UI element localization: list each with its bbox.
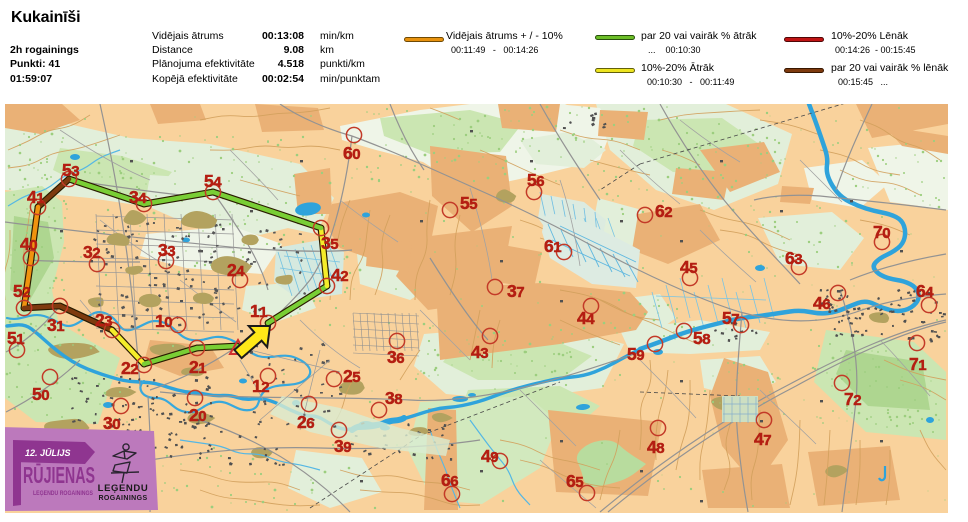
svg-text:46: 46 [813, 293, 830, 313]
svg-text:41: 41 [27, 187, 44, 207]
svg-text:71: 71 [909, 354, 926, 374]
svg-text:10: 10 [155, 311, 172, 331]
svg-text:64: 64 [916, 281, 934, 301]
svg-text:RŪJIENAS: RŪJIENAS [23, 462, 95, 488]
svg-text:50: 50 [32, 384, 49, 404]
svg-text:ROGAININGS: ROGAININGS [98, 495, 147, 502]
svg-text:53: 53 [62, 160, 79, 180]
svg-text:52: 52 [13, 281, 30, 301]
svg-text:44: 44 [577, 308, 595, 328]
svg-text:22: 22 [121, 358, 138, 378]
svg-text:31: 31 [47, 315, 64, 335]
svg-text:47: 47 [754, 429, 771, 449]
svg-text:40: 40 [20, 234, 37, 254]
svg-text:72: 72 [844, 389, 861, 409]
svg-text:56: 56 [527, 170, 544, 190]
svg-text:LEĢENDU ROGAININGS: LEĢENDU ROGAININGS [33, 490, 93, 497]
svg-text:32: 32 [83, 242, 100, 262]
svg-text:66: 66 [441, 470, 458, 490]
svg-text:54: 54 [204, 171, 222, 191]
svg-text:48: 48 [647, 437, 664, 457]
svg-text:25: 25 [343, 366, 360, 386]
svg-text:34: 34 [129, 187, 147, 207]
svg-text:45: 45 [680, 257, 697, 277]
svg-text:43: 43 [471, 342, 488, 362]
svg-text:24: 24 [227, 260, 245, 280]
svg-text:23: 23 [95, 310, 112, 330]
svg-text:26: 26 [297, 412, 314, 432]
svg-text:49: 49 [481, 446, 498, 466]
svg-text:36: 36 [387, 347, 404, 367]
svg-text:11: 11 [250, 301, 267, 321]
svg-text:63: 63 [785, 248, 802, 268]
svg-text:21: 21 [189, 357, 206, 377]
svg-text:55: 55 [460, 193, 477, 213]
svg-text:12. JŪLIJS: 12. JŪLIJS [25, 448, 71, 458]
svg-text:12: 12 [252, 376, 269, 396]
svg-text:37: 37 [507, 281, 524, 301]
svg-text:65: 65 [566, 471, 583, 491]
svg-text:61: 61 [544, 236, 561, 256]
svg-text:LEĢENDU: LEĢENDU [98, 483, 149, 494]
svg-text:42: 42 [331, 265, 348, 285]
svg-text:38: 38 [385, 388, 402, 408]
svg-text:20: 20 [189, 405, 206, 425]
svg-text:57: 57 [722, 308, 739, 328]
svg-text:70: 70 [873, 222, 890, 242]
svg-text:60: 60 [343, 143, 360, 163]
svg-text:35: 35 [321, 233, 338, 253]
svg-text:62: 62 [655, 201, 672, 221]
svg-text:51: 51 [7, 328, 24, 348]
svg-text:39: 39 [334, 436, 351, 456]
svg-text:59: 59 [627, 344, 644, 364]
svg-text:58: 58 [693, 328, 710, 348]
svg-text:33: 33 [158, 240, 175, 260]
